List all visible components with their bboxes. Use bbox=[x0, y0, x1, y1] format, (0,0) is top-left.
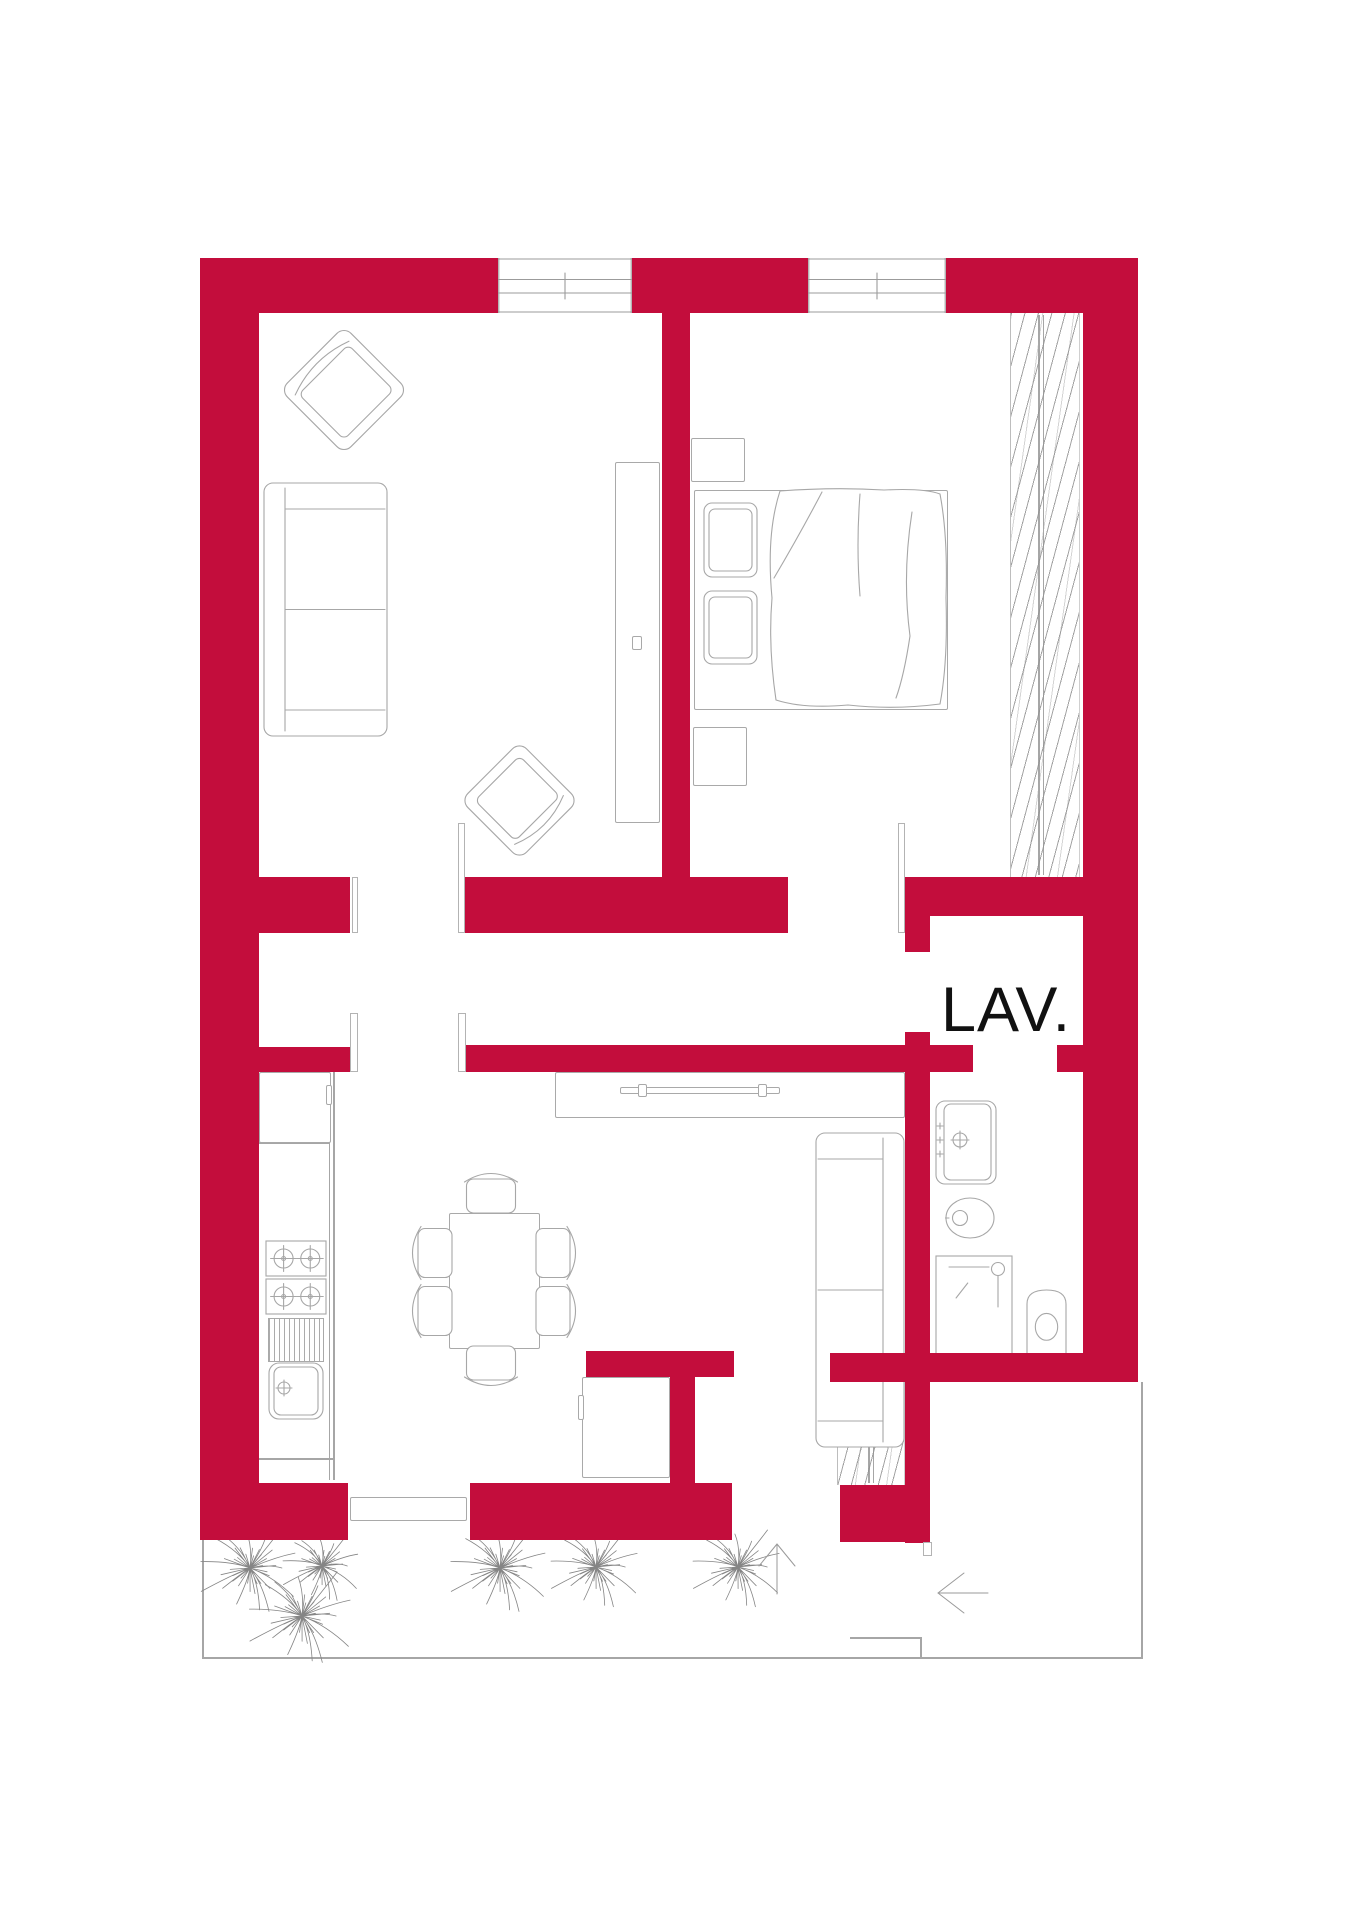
dining-chair-right-1 bbox=[535, 1224, 579, 1282]
bathroom-toilet bbox=[1025, 1288, 1068, 1355]
armchair-living-2 bbox=[459, 740, 579, 860]
window-bedroom bbox=[808, 258, 946, 313]
wall-lav-east-block bbox=[1057, 1045, 1083, 1072]
door-jamb-living-right bbox=[458, 823, 465, 933]
door-jamb-entry bbox=[923, 1542, 932, 1556]
sofa-living-room bbox=[263, 482, 388, 737]
sofa-dining bbox=[815, 1132, 905, 1448]
dining-chair-top bbox=[462, 1170, 520, 1214]
door-jamb-living-left bbox=[352, 877, 358, 933]
kitchen-tall-cabinet bbox=[259, 1072, 331, 1143]
wall-top-middle bbox=[632, 258, 808, 313]
wall-bottom-kitchen bbox=[470, 1483, 732, 1540]
entry-step-top bbox=[850, 1637, 922, 1639]
kitchen-counter-end bbox=[259, 1458, 333, 1460]
wall-lav-west-lower bbox=[905, 1032, 930, 1543]
wall-bath-bottom bbox=[830, 1353, 1138, 1382]
wall-divider-living-bedroom bbox=[662, 313, 690, 880]
stove-burners-bottom bbox=[265, 1278, 327, 1315]
entry-step-side bbox=[920, 1637, 922, 1659]
kitchen-counter-edge-outer bbox=[333, 1072, 335, 1480]
terrace-edge-right bbox=[1141, 1382, 1143, 1659]
armchair-living-1 bbox=[279, 325, 409, 455]
wall-bedroom-bottom bbox=[905, 877, 1085, 916]
floor-plan: LAV. bbox=[0, 0, 1347, 1920]
tv-unit-knob bbox=[632, 636, 642, 650]
wall-entry-block bbox=[840, 1485, 928, 1542]
door-jamb-kitchen-right bbox=[458, 1013, 466, 1072]
door-jamb-bedroom bbox=[898, 823, 905, 933]
wardrobe-hatch bbox=[1010, 313, 1080, 877]
dining-table bbox=[449, 1213, 540, 1349]
dining-chair-left-2 bbox=[409, 1282, 453, 1340]
entry-arrow-up bbox=[757, 1542, 797, 1596]
entry-arrow-left bbox=[936, 1570, 990, 1616]
fridge-handle bbox=[578, 1395, 584, 1420]
wall-stub-upper-left bbox=[259, 877, 350, 933]
room-label-lav: LAV. bbox=[941, 977, 1071, 1043]
stove-burners-top bbox=[265, 1240, 327, 1277]
bathroom-bidet bbox=[945, 1197, 995, 1239]
corridor-niche bbox=[555, 1072, 905, 1118]
wall-lav-west-upper bbox=[905, 877, 930, 952]
wall-stub-lower-left bbox=[259, 1047, 350, 1072]
corridor-niche-clip-b bbox=[758, 1084, 767, 1097]
wall-left bbox=[200, 258, 259, 1540]
dining-chair-right-2 bbox=[535, 1282, 579, 1340]
kitchen-sink bbox=[268, 1362, 324, 1420]
wall-mid-upper bbox=[465, 877, 788, 933]
kitchen-cabinet-handle bbox=[326, 1085, 332, 1105]
bed-duvet bbox=[764, 486, 952, 712]
wall-bottom-left bbox=[200, 1483, 348, 1540]
nightstand-bottom bbox=[693, 727, 747, 786]
wall-dining-el-vertical bbox=[670, 1377, 695, 1483]
fridge-cabinet bbox=[582, 1377, 670, 1478]
bed-pillow-1 bbox=[703, 502, 758, 578]
dining-chair-bottom bbox=[462, 1345, 520, 1389]
wall-dining-el-horizontal bbox=[586, 1351, 734, 1377]
bed-pillow-2 bbox=[703, 590, 758, 665]
bathroom-washbasin bbox=[935, 1100, 997, 1185]
window-living-room bbox=[498, 258, 632, 313]
dish-drainer bbox=[268, 1318, 324, 1362]
wall-right bbox=[1083, 258, 1138, 1382]
nightstand-top bbox=[691, 438, 745, 482]
dining-chair-left-1 bbox=[409, 1224, 453, 1282]
corridor-niche-clip-a bbox=[638, 1084, 647, 1097]
bathroom-shower bbox=[935, 1255, 1013, 1355]
door-jamb-kitchen-left bbox=[350, 1013, 358, 1072]
wall-mid-lower bbox=[465, 1045, 973, 1072]
